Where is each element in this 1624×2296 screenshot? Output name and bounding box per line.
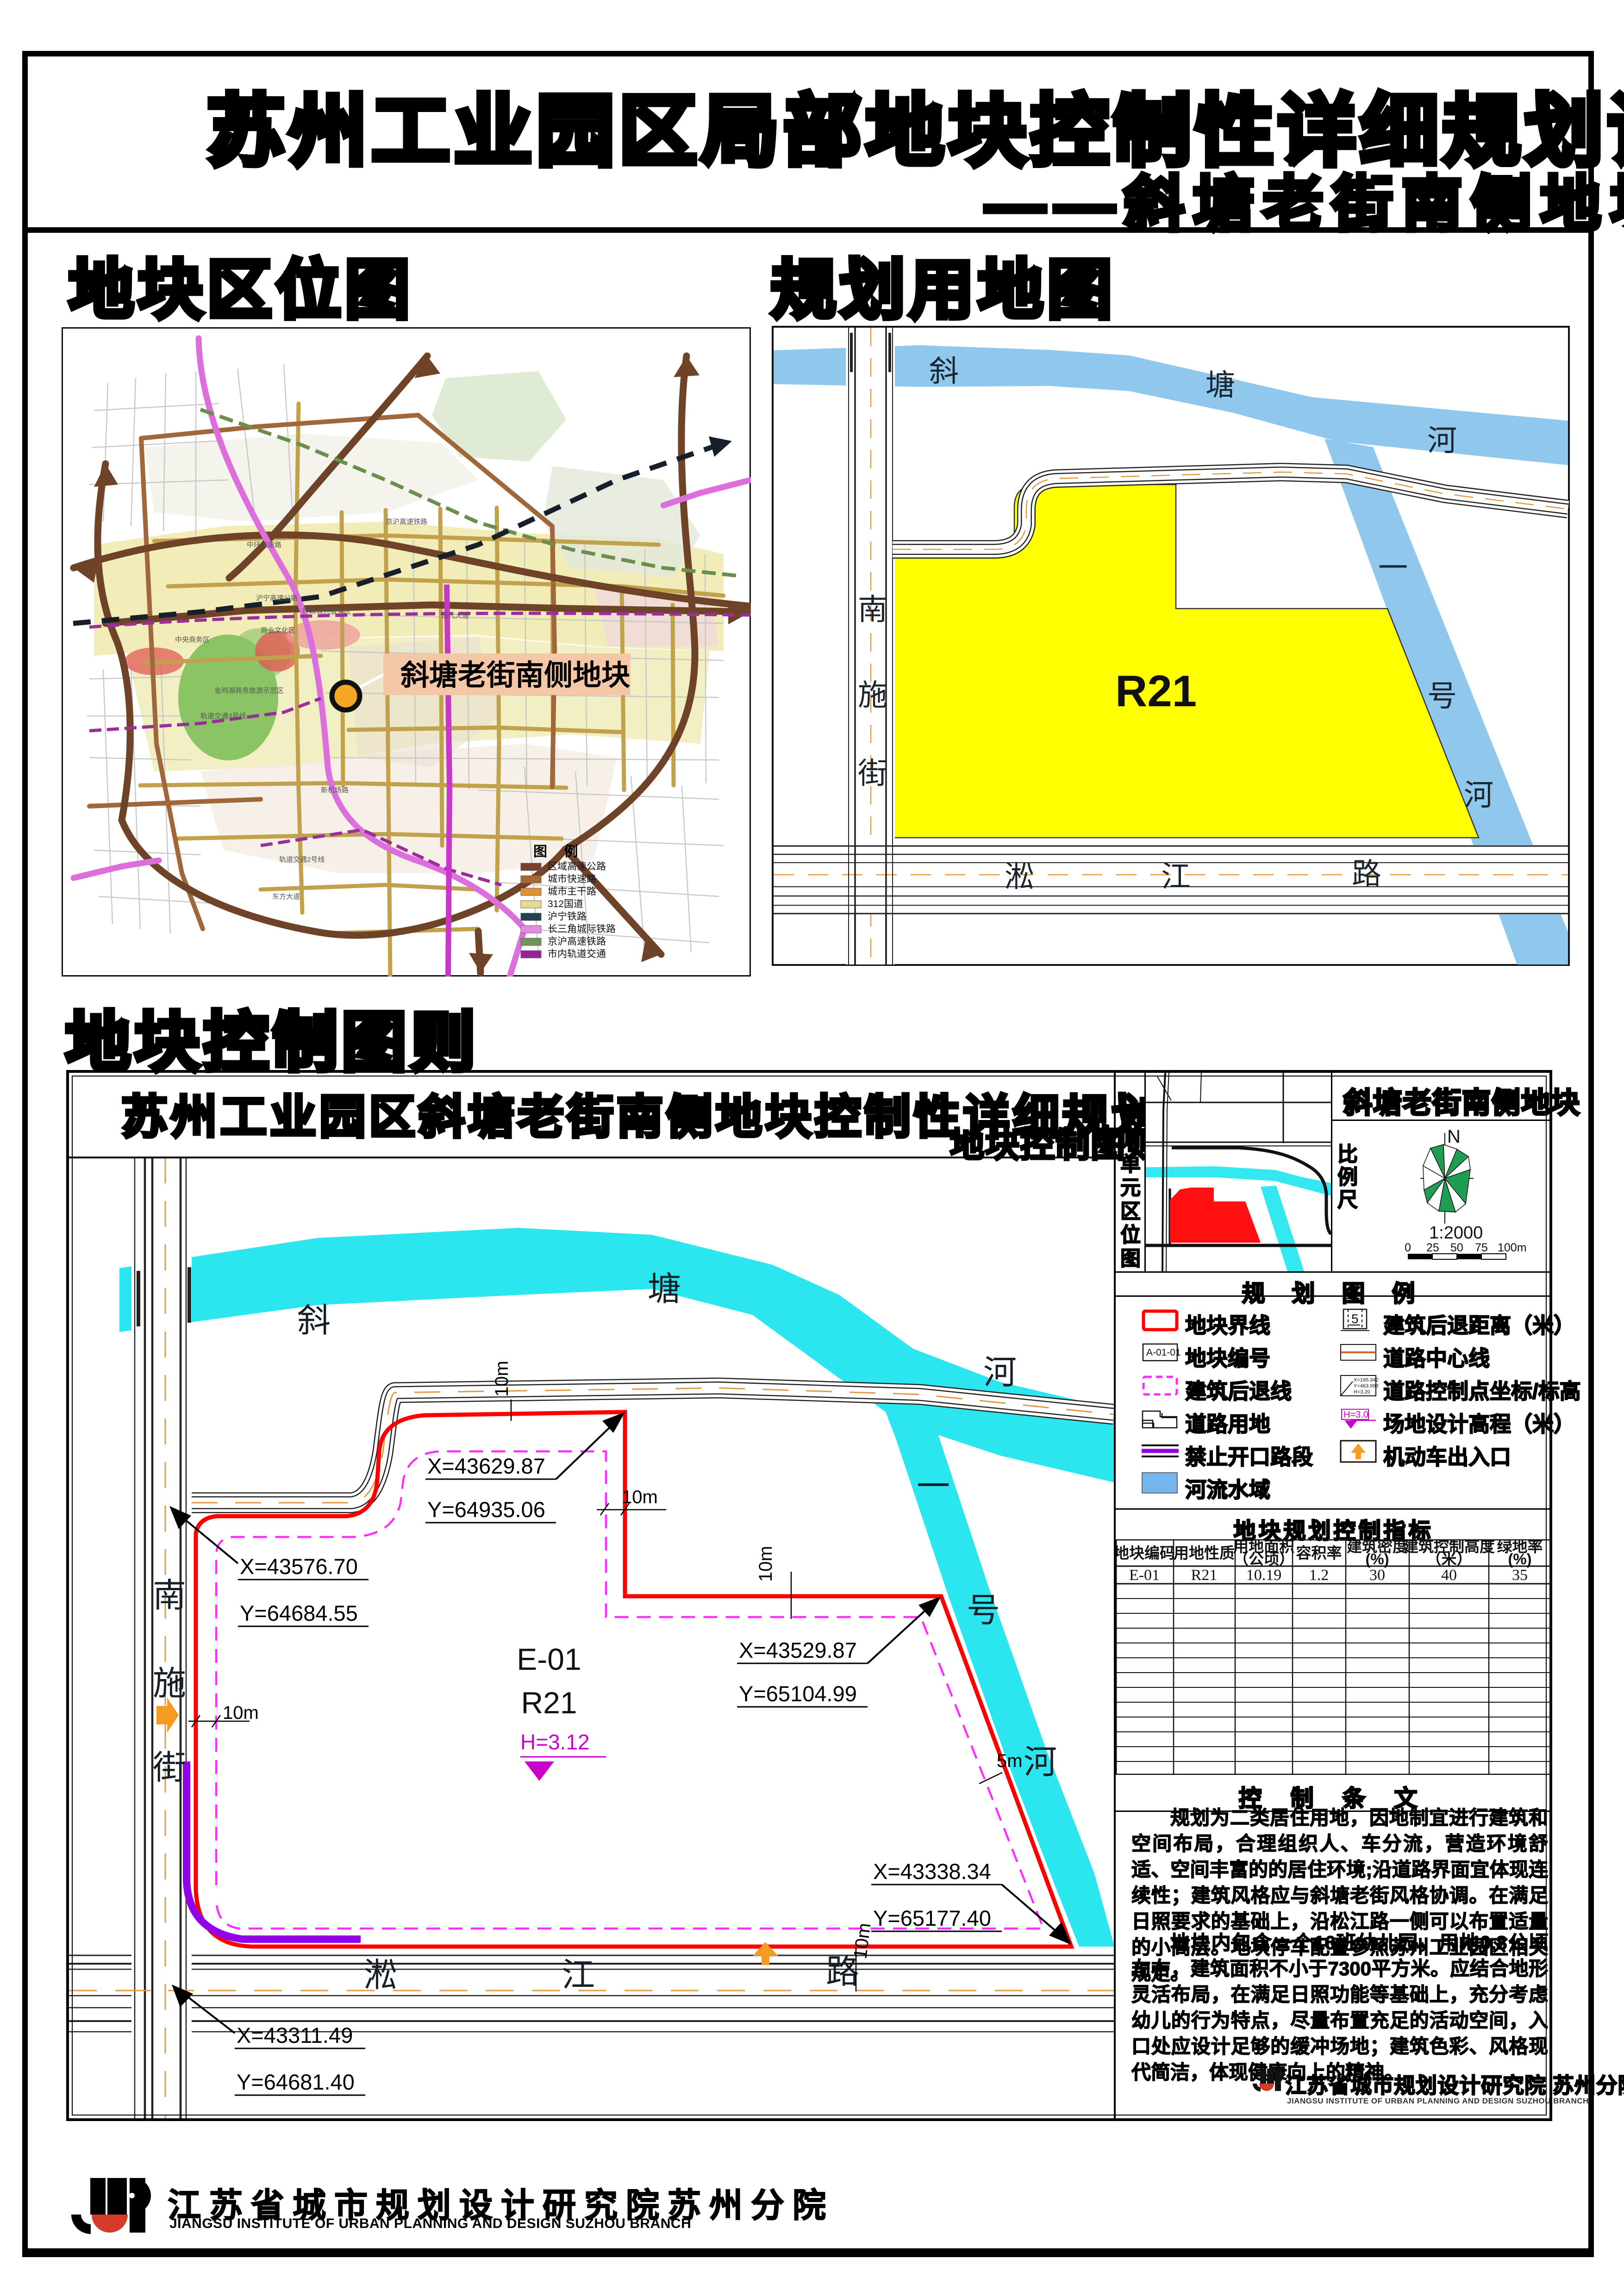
svg-text:施: 施	[858, 678, 887, 712]
svg-text:N: N	[1447, 1126, 1461, 1147]
svg-text:塘: 塘	[1206, 368, 1235, 402]
svg-text:江: 江	[562, 1957, 595, 1994]
svg-text:X=43529.87: X=43529.87	[739, 1638, 857, 1662]
svg-text:R21: R21	[1115, 666, 1197, 716]
svg-text:10m: 10m	[223, 1703, 259, 1723]
svg-text:X=43629.87: X=43629.87	[427, 1454, 545, 1478]
svg-text:Y=65104.99: Y=65104.99	[739, 1681, 857, 1706]
svg-text:X=43311.49: X=43311.49	[237, 2023, 353, 2047]
svg-text:城市快速路: 城市快速路	[548, 874, 596, 884]
svg-text:河: 河	[983, 1354, 1017, 1391]
svg-text:312国道: 312国道	[548, 899, 583, 909]
svg-text:40: 40	[1441, 1567, 1457, 1584]
svg-text:斜: 斜	[929, 355, 959, 388]
svg-text:沪宁铁路: 沪宁铁路	[548, 911, 587, 922]
svg-text:10m: 10m	[756, 1546, 776, 1582]
svg-text:Y=65177.40: Y=65177.40	[873, 1906, 991, 1930]
svg-text:H=3.20: H=3.20	[1354, 1389, 1370, 1395]
svg-text:东方大道: 东方大道	[272, 893, 300, 901]
svg-text:X=43576.70: X=43576.70	[240, 1554, 358, 1579]
svg-text:施: 施	[153, 1665, 186, 1702]
svg-text:沪宁高速公路: 沪宁高速公路	[256, 594, 298, 602]
svg-text:1:2000: 1:2000	[1429, 1223, 1483, 1243]
svg-text:塘: 塘	[648, 1271, 681, 1308]
svg-text:5: 5	[1351, 1312, 1359, 1326]
svg-text:0: 0	[1405, 1241, 1411, 1254]
svg-text:淞: 淞	[1005, 860, 1034, 893]
svg-text:京沪高速铁路: 京沪高速铁路	[386, 518, 427, 526]
svg-text:街: 街	[858, 757, 887, 790]
svg-text:路: 路	[826, 1954, 859, 1991]
svg-text:X=43338.34: X=43338.34	[873, 1859, 991, 1884]
svg-text:号: 号	[967, 1592, 1000, 1629]
svg-text:E-01: E-01	[1129, 1567, 1160, 1584]
svg-text:A-01-01: A-01-01	[1146, 1347, 1181, 1358]
svg-text:50: 50	[1450, 1241, 1463, 1254]
svg-text:用地性质: 用地性质	[1174, 1544, 1235, 1562]
svg-text:南: 南	[858, 593, 887, 626]
svg-text:斜塘老街南侧地块: 斜塘老街南侧地块	[400, 660, 630, 691]
svg-text:容积率: 容积率	[1296, 1544, 1342, 1562]
svg-text:25: 25	[1426, 1241, 1439, 1254]
svg-text:现代大道: 现代大道	[441, 612, 469, 620]
svg-text:城市主干路: 城市主干路	[548, 886, 596, 897]
svg-text:Y=463.998: Y=463.998	[1354, 1383, 1379, 1389]
svg-text:(%): (%)	[1365, 1550, 1389, 1568]
svg-text:淞: 淞	[364, 1957, 397, 1994]
svg-text:地块编码: 地块编码	[1116, 1544, 1175, 1562]
svg-text:斜: 斜	[297, 1302, 331, 1339]
svg-text:中环快速路: 中环快速路	[247, 541, 281, 549]
svg-text:R21: R21	[1191, 1567, 1218, 1584]
svg-text:路: 路	[1352, 857, 1381, 890]
svg-text:10m: 10m	[850, 1922, 874, 1960]
svg-text:5m: 5m	[997, 1751, 1023, 1771]
svg-text:Y=64935.06: Y=64935.06	[427, 1497, 545, 1522]
svg-text:轨道交通2号线: 轨道交通2号线	[279, 855, 325, 864]
svg-text:河: 河	[1464, 778, 1493, 812]
svg-text:中央商务区: 中央商务区	[175, 636, 210, 644]
svg-text:10m: 10m	[492, 1361, 512, 1397]
svg-text:京沪高速铁路: 京沪高速铁路	[548, 936, 606, 947]
svg-text:(%): (%)	[1508, 1550, 1531, 1568]
svg-text:10m: 10m	[622, 1487, 658, 1507]
svg-text:Y=64681.40: Y=64681.40	[237, 2070, 355, 2094]
svg-text:市内轨道交通: 市内轨道交通	[548, 949, 606, 959]
svg-text:1.2: 1.2	[1309, 1567, 1329, 1584]
svg-text:街: 街	[153, 1749, 186, 1786]
svg-text:商业文化区: 商业文化区	[261, 627, 295, 635]
svg-text:长三角城际铁路: 长三角城际铁路	[548, 924, 616, 934]
svg-text:H=3.0: H=3.0	[1343, 1410, 1368, 1420]
svg-text:南: 南	[153, 1577, 186, 1614]
svg-text:E-01: E-01	[517, 1642, 581, 1676]
svg-text:金鸡湖商务旅游示范区: 金鸡湖商务旅游示范区	[214, 687, 284, 695]
svg-text:R21: R21	[521, 1686, 577, 1720]
svg-text:图 例: 图 例	[533, 844, 584, 859]
svg-text:号: 号	[1427, 679, 1457, 713]
svg-text:新机场路: 新机场路	[321, 786, 349, 794]
svg-text:75: 75	[1475, 1241, 1488, 1254]
svg-text:一: 一	[917, 1468, 950, 1505]
svg-text:一: 一	[1378, 551, 1408, 585]
svg-text:100m: 100m	[1498, 1241, 1527, 1254]
svg-text:35: 35	[1512, 1567, 1528, 1584]
svg-text:行政公共服务区: 行政公共服务区	[302, 607, 351, 615]
svg-text:河: 河	[1024, 1744, 1057, 1781]
svg-text:轨道交通3号线: 轨道交通3号线	[200, 712, 246, 720]
svg-text:10.19: 10.19	[1246, 1567, 1282, 1584]
svg-text:（公顷）: （公顷）	[1233, 1550, 1294, 1568]
svg-text:30: 30	[1369, 1567, 1385, 1584]
svg-text:Y=64684.55: Y=64684.55	[240, 1601, 358, 1625]
svg-text:X=195.342: X=195.342	[1354, 1377, 1379, 1383]
svg-text:区域高速公路: 区域高速公路	[548, 861, 606, 872]
svg-text:河: 河	[1427, 424, 1457, 457]
svg-text:（米）: （米）	[1426, 1550, 1472, 1568]
svg-text:H=3.12: H=3.12	[520, 1730, 590, 1754]
svg-text:江: 江	[1161, 860, 1191, 893]
